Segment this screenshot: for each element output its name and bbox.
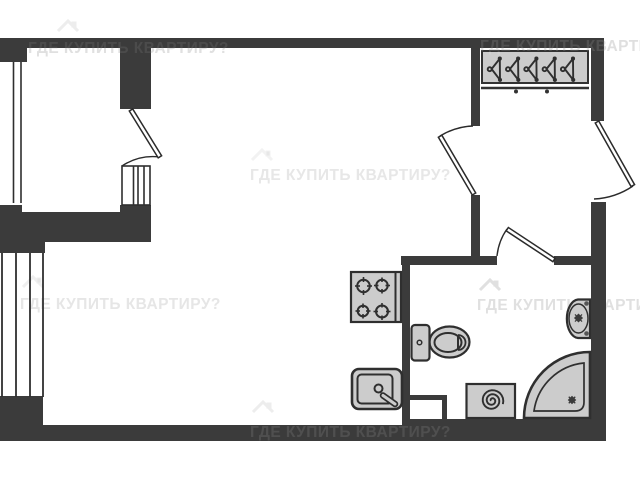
svg-text:ГДЕ КУПИТЬ КВАРТИРУ?: ГДЕ КУПИТЬ КВАРТИРУ? bbox=[477, 297, 640, 314]
svg-text:ГДЕ КУПИТЬ КВАРТИРУ?: ГДЕ КУПИТЬ КВАРТИРУ? bbox=[28, 40, 229, 57]
svg-text:ГДЕ КУПИТЬ КВАРТИРУ?: ГДЕ КУПИТЬ КВАРТИРУ? bbox=[20, 296, 221, 313]
svg-text:ГДЕ КУПИТЬ КВАРТИРУ?: ГДЕ КУПИТЬ КВАРТИРУ? bbox=[250, 167, 451, 184]
svg-text:ГДЕ КУПИТЬ КВАРТИРУ?: ГДЕ КУПИТЬ КВАРТИРУ? bbox=[480, 38, 640, 55]
svg-text:ГДЕ КУПИТЬ КВАРТИРУ?: ГДЕ КУПИТЬ КВАРТИРУ? bbox=[250, 424, 451, 441]
